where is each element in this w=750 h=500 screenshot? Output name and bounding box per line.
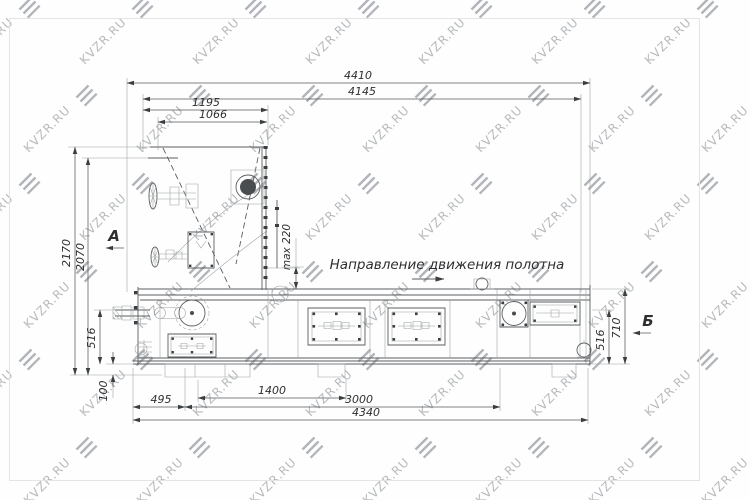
dim-1066: 1066 bbox=[199, 108, 227, 121]
dim-max-220: max 220 bbox=[281, 224, 293, 271]
panel-mid-2 bbox=[388, 308, 445, 345]
handwheel-lower bbox=[151, 247, 188, 267]
dim-2070: 2070 bbox=[74, 243, 87, 271]
view-label-b: Б bbox=[633, 312, 654, 333]
technical-drawing: 4410 4145 1195 1066 2170 2070 516 100 ma… bbox=[0, 0, 750, 500]
extension-lines bbox=[68, 78, 630, 424]
view-label-a: А bbox=[106, 227, 124, 248]
view-a-letter: А bbox=[107, 227, 120, 245]
dim-4145: 4145 bbox=[348, 85, 376, 98]
panel-mid-1 bbox=[308, 308, 365, 345]
drive-end bbox=[113, 291, 209, 360]
drawing-page: KVZR.RUKVZR.RUKVZR.RUKVZR.RUKVZR.RUKVZR.… bbox=[0, 0, 750, 500]
dim-4410: 4410 bbox=[344, 69, 372, 82]
view-b-letter: Б bbox=[642, 312, 653, 330]
dim-516-right: 516 bbox=[594, 330, 607, 351]
dim-2170: 2170 bbox=[60, 239, 73, 267]
direction-note-text: Направление движения полотна bbox=[330, 257, 565, 273]
dim-3000: 3000 bbox=[345, 393, 373, 406]
dimension-labels: 4410 4145 1195 1066 2170 2070 516 100 ma… bbox=[60, 69, 623, 419]
direction-note: Направление движения полотна bbox=[330, 257, 565, 279]
dim-495: 495 bbox=[151, 393, 172, 406]
guide-roll bbox=[470, 278, 494, 290]
dim-1400: 1400 bbox=[258, 384, 286, 397]
panel-left-lower bbox=[168, 334, 216, 357]
dimension-lines bbox=[75, 83, 625, 420]
dim-516-left: 516 bbox=[85, 328, 98, 349]
right-end-assembly bbox=[500, 300, 591, 357]
dim-4340: 4340 bbox=[352, 406, 380, 419]
dim-100: 100 bbox=[97, 381, 110, 402]
dim-710: 710 bbox=[610, 318, 623, 339]
breast-roll bbox=[266, 268, 300, 302]
handwheel-upper bbox=[149, 183, 198, 209]
headbox bbox=[148, 146, 279, 291]
